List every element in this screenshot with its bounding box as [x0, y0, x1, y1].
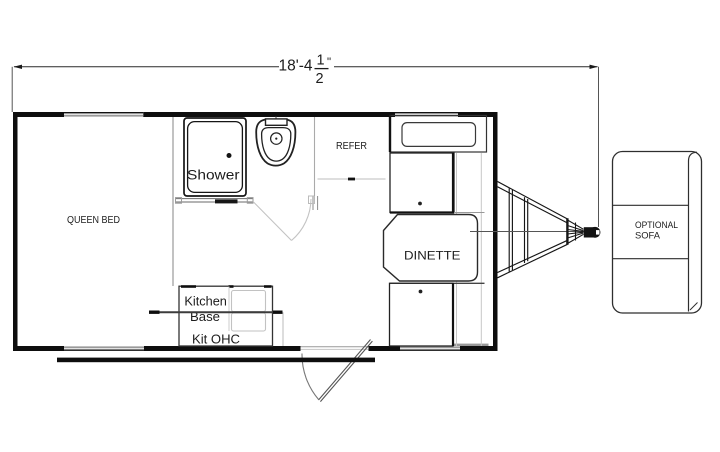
svg-text:DINETTE: DINETTE — [404, 248, 461, 262]
svg-text:1: 1 — [317, 53, 325, 69]
svg-text:Kitchen: Kitchen — [184, 293, 227, 308]
svg-text:Kit OHC: Kit OHC — [192, 332, 240, 347]
svg-text:SOFA: SOFA — [635, 230, 661, 241]
svg-text:QUEEN BED: QUEEN BED — [67, 214, 120, 226]
svg-text:OPTIONAL: OPTIONAL — [635, 220, 678, 231]
svg-text:": " — [327, 57, 331, 69]
svg-text:2: 2 — [316, 71, 324, 87]
svg-text:Shower: Shower — [187, 167, 240, 183]
svg-text:18'-4: 18'-4 — [279, 57, 313, 74]
svg-text:Base: Base — [190, 309, 220, 324]
svg-text:REFER: REFER — [336, 140, 367, 152]
